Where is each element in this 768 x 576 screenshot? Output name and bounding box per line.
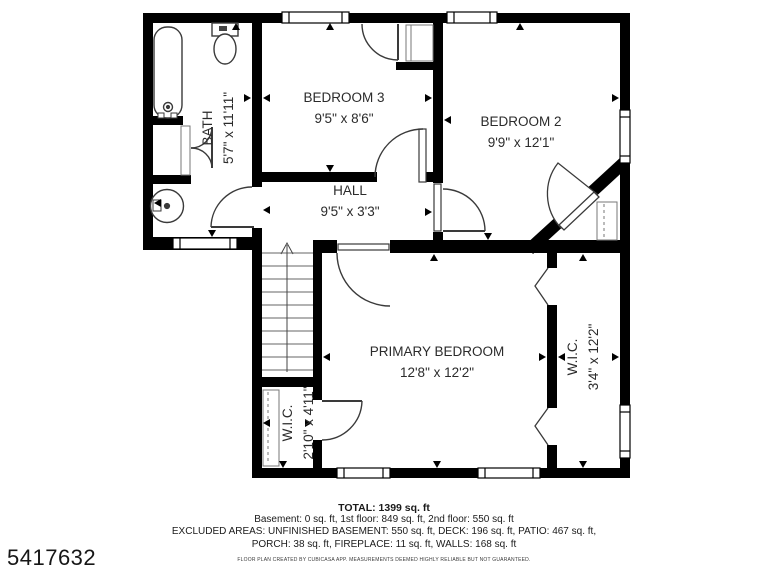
door-primary-bedroom [337, 240, 390, 306]
stairs-direction-arrow [281, 243, 293, 372]
stairs [262, 243, 313, 372]
door-bifold-wic-top [535, 268, 548, 305]
room-label-bedroom2: BEDROOM 2 9'9" x 12'1" [480, 112, 561, 154]
wall-wic-divider-c [547, 445, 557, 478]
room-label-wic-right: W.I.C. 3'4" x 12'2" [563, 324, 605, 391]
wall-bed3-closet-bottom [396, 62, 443, 70]
disclaimer: FLOOR PLAN CREATED BY CUBICASA APP. MEAS… [0, 557, 768, 563]
room-name: HALL [320, 181, 379, 202]
floor-plan-drawing [0, 0, 768, 500]
floor-plan-page: BATH 5'7" x 11'11" BEDROOM 3 9'5" x 8'6"… [0, 0, 768, 576]
area-summary: TOTAL: 1399 sq. ft Basement: 0 sq. ft, 1… [0, 502, 768, 563]
room-label-bedroom3: BEDROOM 3 9'5" x 8'6" [303, 88, 384, 130]
floor-areas: Basement: 0 sq. ft, 1st floor: 849 sq. f… [0, 514, 768, 526]
total-area: TOTAL: 1399 sq. ft [0, 502, 768, 514]
wall-band-right [390, 240, 630, 253]
wall-bath-right-upper [252, 23, 262, 187]
room-dims: 9'9" x 12'1" [480, 133, 561, 154]
room-name: BEDROOM 2 [480, 112, 561, 133]
sink [151, 190, 184, 223]
window-top-bedroom3 [282, 12, 349, 23]
window-top-bedroom2 [447, 12, 497, 23]
bed3-closet-shelf [406, 25, 433, 61]
window-right-wic [620, 405, 630, 458]
window-bottom-right [478, 468, 540, 478]
room-label-primary-bedroom: PRIMARY BEDROOM 12'8" x 12'2" [370, 342, 505, 384]
door-bedroom3 [375, 129, 426, 182]
wall-bed3-bed2-divider [433, 13, 443, 183]
room-name: BEDROOM 3 [303, 88, 384, 109]
room-name: PRIMARY BEDROOM [370, 342, 505, 363]
room-label-hall: HALL 9'5" x 3'3" [320, 181, 379, 223]
window-bath-bottom [173, 238, 237, 249]
room-name: W.I.C. [563, 324, 584, 391]
room-dims: 9'5" x 3'3" [320, 202, 379, 223]
door-bed3-closet [362, 24, 398, 60]
room-dims: 12'8" x 12'2" [370, 363, 505, 384]
floor-plan: BATH 5'7" x 11'11" BEDROOM 3 9'5" x 8'6"… [0, 0, 768, 500]
door-bifold-wic-bottom [535, 408, 548, 445]
wall-wic-divider-a [547, 240, 557, 268]
niche-shelf [181, 126, 190, 175]
room-name: BATH [198, 92, 219, 164]
wic-left-shelf [263, 390, 279, 466]
room-dims: 9'5" x 8'6" [303, 109, 384, 130]
bed2-closet-shelf [597, 202, 617, 240]
wall-left [143, 13, 153, 250]
room-label-bath: BATH 5'7" x 11'11" [198, 92, 240, 164]
wall-stairs-left [252, 228, 262, 478]
room-dims: 5'7" x 11'11" [219, 92, 240, 164]
room-dims: 2'10" x 4'11" [299, 386, 320, 459]
room-dims: 3'4" x 12'2" [584, 324, 605, 391]
window-bottom-left [337, 468, 390, 478]
excluded-areas-line2: PORCH: 38 sq. ft, FIREPLACE: 11 sq. ft, … [0, 539, 768, 551]
wall-stairs-right-upper [313, 240, 322, 400]
door-bedroom2-diagonal [547, 163, 599, 230]
bathtub [154, 27, 182, 118]
room-label-wic-left: W.I.C. 2'10" x 4'11" [278, 386, 320, 459]
room-name: W.I.C. [278, 386, 299, 459]
excluded-areas-line1: EXCLUDED AREAS: UNFINISHED BASEMENT: 550… [0, 526, 768, 538]
plan-id: 5417632 [7, 545, 96, 571]
wall-bottom [252, 468, 630, 478]
wall-right-upper [620, 13, 630, 110]
door-bath [211, 187, 262, 228]
wall-top [143, 13, 630, 23]
wall-wic-divider-b [547, 305, 557, 408]
window-right-bedroom2 [620, 110, 630, 163]
door-bedroom2 [433, 183, 485, 232]
wall-niche-stub [143, 175, 191, 184]
door-wic-left [313, 400, 362, 440]
